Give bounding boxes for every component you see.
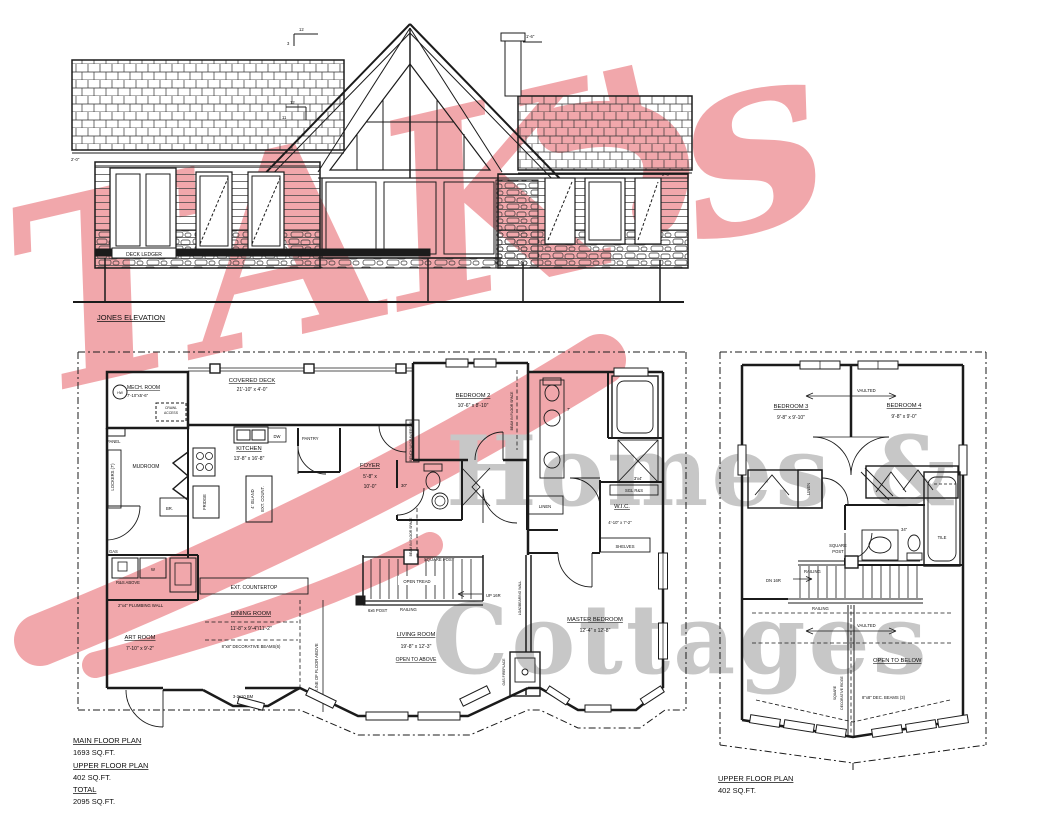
linen-label: LINEN: [539, 504, 551, 509]
pitch-run-top: 3: [287, 41, 290, 46]
stairs-main: [356, 550, 483, 605]
summary-upper-label: UPPER FLOOR PLAN: [73, 761, 148, 770]
post66-label: 6x6 POST: [368, 608, 388, 613]
up-label: UP 16R: [486, 593, 501, 598]
dn-label: DN 16R: [766, 578, 781, 583]
bm-label: 3-2x10 BM: [233, 694, 254, 699]
elevation-caption: JONES ELEVATION: [97, 313, 165, 322]
bedroom2-label: BEDROOM 2: [456, 393, 491, 399]
summary-total-label: TOTAL: [73, 785, 96, 794]
panel-label: PANEL: [107, 439, 121, 444]
pitch-rise-side: 12: [290, 100, 295, 105]
elevation-roofs: [72, 60, 692, 173]
bedroom2-dims: 10'-6" x 8'-10": [458, 403, 489, 409]
master-dims: 12'-4" x 12'-8": [580, 628, 611, 634]
br-label: BR.: [166, 506, 173, 511]
pitch-rise-top: 12: [299, 27, 304, 32]
ridge-label-2: DECORATIVE RIDGE: [840, 676, 844, 710]
vanity-dim: 7': [567, 407, 570, 412]
washer-label: W: [151, 567, 155, 572]
foyer-dims-1: 5'-8" x: [363, 474, 377, 480]
summary-main-area: 1693 SQ.FT.: [73, 748, 115, 757]
shelves-label: SHELVES: [615, 544, 634, 549]
upper-windows: [738, 361, 968, 737]
foyer-dims-2: 10'-0": [364, 484, 377, 490]
gas-label: GAS: [109, 549, 118, 554]
dim-right: 2'-0": [662, 172, 671, 177]
sgl-rs-label: SGL R&S: [625, 488, 643, 493]
summary-total-area: 2095 SQ.FT.: [73, 797, 115, 806]
open-tread-label: OPEN TREAD: [403, 579, 430, 584]
summary-main-label: MAIN FLOOR PLAN: [73, 736, 141, 745]
wic-dims: 4'-10" x 7'-2": [608, 520, 632, 525]
dw-label: DW: [274, 434, 281, 439]
shower-dims: 3'x4': [634, 476, 643, 481]
rs-above-label: R&S ABOVE: [116, 580, 140, 585]
blueprint-drawing: 12 3 12 11 2'-0" 2'-0" 1'-6" DECK LEDGER…: [0, 0, 1056, 816]
pitch-run-side: 11: [282, 115, 287, 120]
crawl-label-2: ACCESS: [164, 411, 179, 415]
living-dims: 19'-8" x 12'-3": [401, 644, 432, 650]
vaulted-label-1: VAULTED: [857, 388, 876, 393]
upper-square-post-2: POST: [832, 549, 844, 554]
beams-label: 8"x8" DECORATIVE BEAMS(6): [222, 644, 281, 649]
kitchen-label: KITCHEN: [236, 446, 261, 452]
art-room-dims: 7'-10" x 9'-2": [126, 646, 154, 652]
ext-count-label: EXT. COUNT.: [260, 486, 265, 512]
pantry-label: PANTRY: [302, 436, 319, 441]
upper-railing-2: RAILING: [812, 606, 829, 611]
mech-room-dims: 7'-10"x5'-6": [127, 393, 149, 398]
bedroom3-dims: 9'-8" x 9'-10": [777, 415, 805, 421]
ext-countertop-label: EXT. COUNTERTOP: [231, 585, 278, 591]
open-below-label: OPEN TO BELOW: [873, 658, 922, 664]
upper-caption-label: UPPER FLOOR PLAN: [718, 774, 793, 783]
loadbearing-label: LOADBEARING WALL: [518, 581, 522, 616]
bedroom3-label: BEDROOM 3: [774, 404, 809, 410]
upper-bath-fixtures: [862, 472, 960, 566]
upper-floor-texts: VAULTED BEDROOM 3 9'-8" x 9'-10" BEDROOM…: [766, 388, 947, 710]
main-outer-walls: [107, 363, 663, 716]
dec-beams-label: 8"x8" DEC. BEAMS (3): [862, 695, 906, 700]
line-floor-above-label: LINE OF FLOOR ABOVE: [314, 643, 319, 690]
square-post-label: SQUARE POST: [424, 557, 455, 562]
covered-deck: [188, 364, 412, 373]
mudroom-label: MUDROOM: [133, 464, 160, 470]
fridge-label: FRIDGE: [202, 494, 207, 510]
foyer-powder-fixtures: [379, 420, 517, 523]
beam-floor-space-label-2: BEAM IN FLOOR SPACE: [409, 517, 413, 556]
bench-label: BENCH W/ DRAWERS (4'): [409, 421, 413, 462]
bedroom4-label: BEDROOM 4: [887, 403, 923, 409]
upper-square-post-1: SQUARE: [829, 543, 847, 548]
upper-stairs: [788, 556, 923, 603]
door-30-label: 30": [401, 483, 408, 488]
dining-dims: 11'-8" x 9'-4"/11'-2": [230, 626, 272, 632]
living-label: LIVING ROOM: [397, 632, 436, 638]
gas-fireplace-label: GAS FIREPLACE: [502, 658, 506, 686]
vaulted-label-2: VAULTED: [857, 623, 876, 628]
dining-label: DINING ROOM: [231, 611, 271, 617]
sink-dim-label: 34": [901, 527, 908, 532]
mech-room-label: MECH. ROOM: [127, 385, 160, 391]
drawing-sheet: TAK's Homes & Cottages: [0, 0, 1056, 816]
foyer-label: FOYER: [360, 463, 380, 469]
wic-label: W.I.C.: [614, 504, 630, 510]
beam-floor-space-label-1: BEAM IN FLOOR SPACE: [510, 391, 514, 430]
island-label: 4' ISLAND: [250, 489, 255, 508]
covered-deck-label: COVERED DECK: [229, 378, 276, 384]
jones-elevation: 12 3 12 11 2'-0" 2'-0" 1'-6" DECK LEDGER…: [71, 24, 692, 322]
hw-label: HW: [117, 391, 123, 395]
open-above-label: OPEN TO ABOVE: [396, 657, 437, 663]
master-label: MASTER BEDROOM: [567, 617, 623, 623]
art-room-label: ART ROOM: [124, 635, 155, 641]
plan-captions: MAIN FLOOR PLAN 1693 SQ.FT. UPPER FLOOR …: [73, 736, 793, 806]
upper-doors-closets: [748, 437, 958, 560]
plumbing-wall-label: 2"x4" PLUMBING WALL: [118, 603, 164, 608]
elevation-right-wall: [498, 174, 688, 268]
main-dashed-details: [205, 370, 517, 712]
upper-railing-1: RAILING: [804, 569, 821, 574]
crawl-label-1: CRAWL: [165, 406, 177, 410]
main-floor-plan: MECH. ROOM 7'-10"x5'-6" HW CRAWL ACCESS …: [78, 352, 686, 735]
summary-upper-area: 402 SQ.FT.: [73, 773, 111, 782]
upper-linen-label: LINEN: [806, 483, 811, 495]
ridge-label-1: SQUARE: [833, 685, 837, 700]
dim-left: 2'-0": [71, 157, 80, 162]
upper-outer-walls: [742, 365, 963, 737]
main-windows: [126, 359, 668, 727]
dim-chimney: 1'-6": [526, 34, 535, 39]
railing-label: RAILING: [400, 607, 417, 612]
deck-ledger-label: DECK LEDGER: [126, 252, 162, 258]
upper-interior-walls: [742, 365, 963, 737]
kitchen-dims: 13'-8" x 16'-8": [234, 456, 265, 462]
lockers-label: LOCKERS (7'): [110, 463, 115, 491]
upper-caption-area: 402 SQ.FT.: [718, 786, 756, 795]
covered-deck-dims: 21'-10" x 4'-0": [237, 387, 268, 393]
upper-floor-plan: VAULTED BEDROOM 3 9'-8" x 9'-10" BEDROOM…: [720, 352, 986, 772]
main-interior-walls: [107, 372, 663, 695]
bedroom4-dims: 9'-8" x 9'-0": [891, 414, 916, 420]
laundry-fixtures: [112, 558, 308, 594]
tile-label: TILE: [938, 535, 947, 540]
